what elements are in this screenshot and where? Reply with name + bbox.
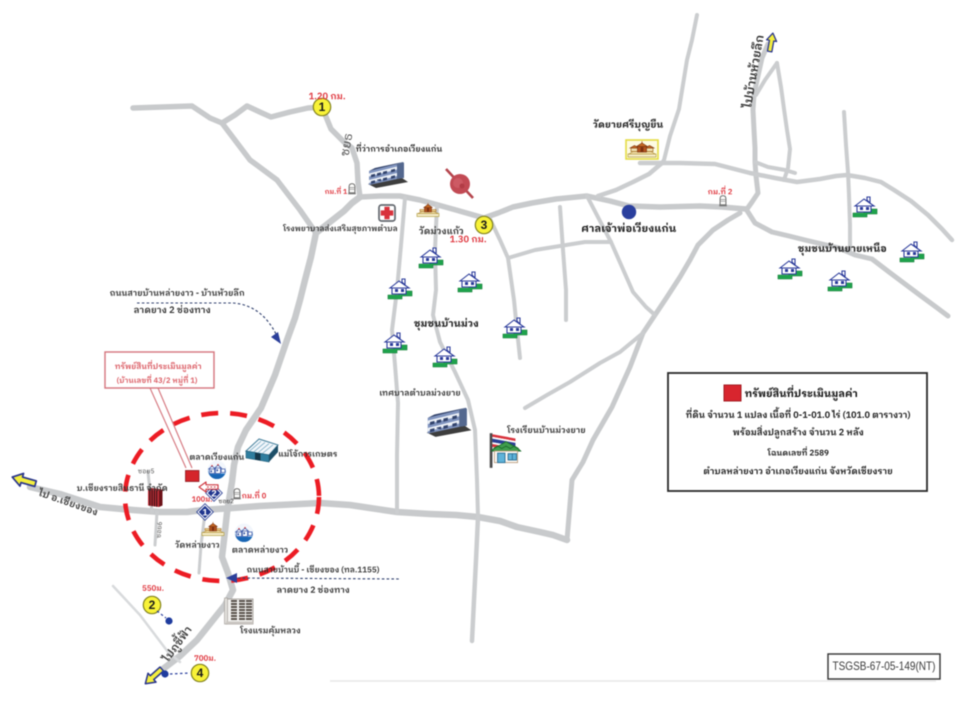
svg-text:3: 3: [481, 218, 488, 232]
svg-text:4: 4: [197, 666, 204, 680]
svg-text:2: 2: [149, 598, 156, 612]
svg-text:TSGSB-67-05-149(NT): TSGSB-67-05-149(NT): [833, 659, 936, 673]
svg-text:2: 2: [211, 488, 216, 499]
svg-text:1: 1: [202, 507, 208, 518]
svg-text:1: 1: [319, 100, 326, 114]
